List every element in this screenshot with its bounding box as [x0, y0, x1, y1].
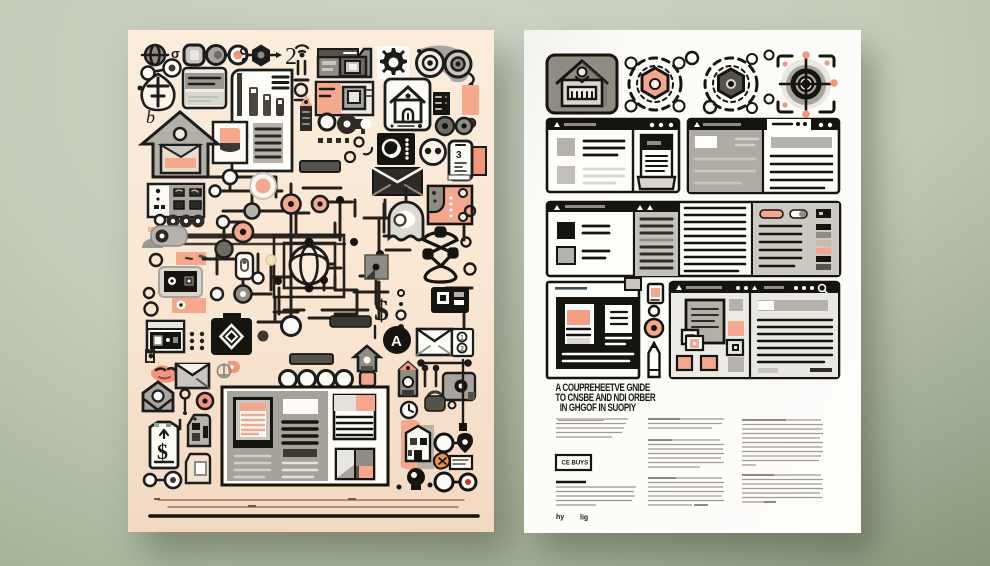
- svg-text:3: 3: [456, 150, 462, 161]
- svg-text:$: $: [157, 439, 168, 464]
- svg-text:2: 2: [460, 346, 464, 353]
- svg-text:CE BUYS: CE BUYS: [562, 461, 589, 467]
- svg-text:A: A: [391, 333, 402, 350]
- svg-text:IN GHGOF IN SUOPIY: IN GHGOF IN SUOPIY: [560, 402, 637, 415]
- svg-text:$: $: [374, 294, 389, 327]
- svg-text:1: 1: [460, 335, 464, 342]
- svg-text:lig: lig: [580, 515, 588, 522]
- svg-text:b: b: [146, 107, 155, 127]
- svg-text:hy: hy: [556, 514, 564, 521]
